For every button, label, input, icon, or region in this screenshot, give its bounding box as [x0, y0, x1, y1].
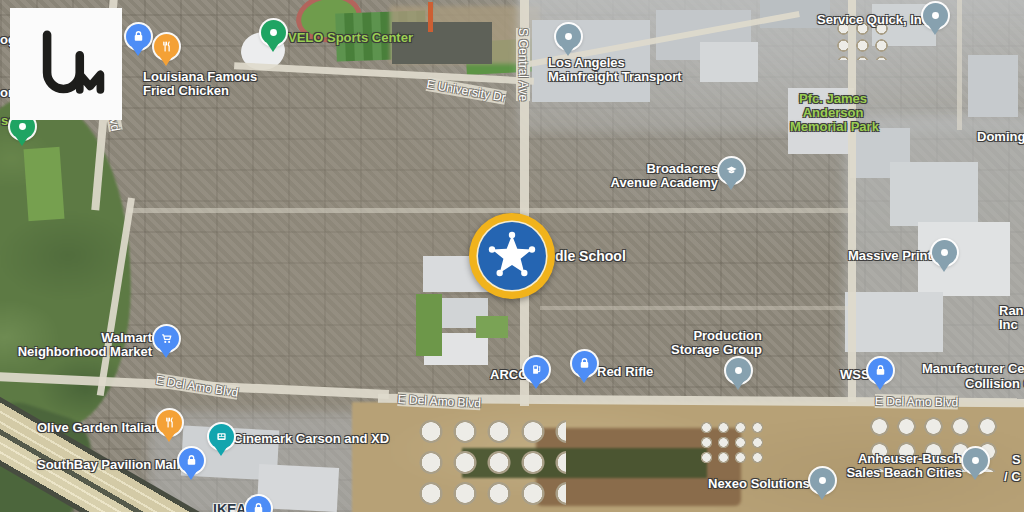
poi-dot-icon: [731, 363, 746, 378]
poi-dot-icon: [561, 29, 576, 44]
broadacres-label: BroadacresAvenue Academy: [610, 162, 718, 190]
olive-garden-label: Olive Garden Italian: [37, 421, 159, 435]
shopping-bag-icon: [131, 29, 146, 44]
massive-print-marker[interactable]: [932, 240, 957, 272]
restaurant-icon: [162, 415, 177, 430]
nexeo-label: Nexeo Solutions: [708, 477, 810, 491]
wss-label: WSS: [840, 368, 870, 382]
road-mid-street: [540, 306, 850, 310]
arco-marker[interactable]: [524, 357, 549, 389]
los-angeles-mainfreight-transport-marker[interactable]: [556, 24, 581, 56]
road-e-university-dr: [234, 62, 534, 85]
louisiana-famous-fried-chicken-marker[interactable]: [154, 34, 179, 66]
broadacres-avenue-academy-marker[interactable]: [719, 158, 744, 190]
walmart-label: WalmartNeighborhood Market: [15, 331, 152, 359]
shopping-bag-icon: [577, 356, 592, 371]
velo-sports-center-marker[interactable]: [261, 20, 286, 52]
graduation-cap-icon: [724, 163, 739, 178]
poi-dot-icon: [937, 245, 952, 260]
louisiana-label: Louisiana FamousFried Chicken: [143, 70, 257, 98]
massive-print-label: Massive Print: [848, 249, 932, 263]
poi-dot-icon: [815, 473, 830, 488]
walmart-neighborhood-market-marker[interactable]: [154, 326, 179, 358]
restaurant-icon: [159, 39, 174, 54]
road-vertical-east: [957, 0, 962, 130]
central-ave-label: S Central Ave: [516, 28, 530, 101]
shopping-bag-icon: [184, 453, 199, 468]
anheuser-label: Anheuser-BuschSales Beach Cities: [845, 452, 962, 480]
school-label: dle School: [555, 249, 626, 263]
anheuser-busch-marker[interactable]: [963, 448, 988, 480]
movie-icon: [214, 429, 229, 444]
service-quick-marker[interactable]: [923, 3, 948, 35]
liveuamap-logo[interactable]: [10, 8, 122, 120]
wss-marker[interactable]: [868, 358, 893, 390]
sheriff-star-icon: [468, 212, 556, 300]
liveuamap-um-icon: [23, 21, 109, 107]
police-event-star-badge[interactable]: [468, 212, 556, 304]
map-canvas[interactable]: Louisiana FamousFried ChickenVELO Sports…: [0, 0, 1024, 512]
service-quick-label: Service Quick, Inc: [817, 13, 929, 27]
road-avalon-blvd: [97, 197, 135, 396]
del-amo-east-label: E Del Amo Blvd: [875, 394, 959, 409]
southbay-label: SouthBay Pavilion Mall: [37, 458, 180, 472]
edge-fragment-c: / C: [1004, 470, 1021, 484]
southbay-pavilion-mall-marker[interactable]: [179, 448, 204, 480]
ikea-marker[interactable]: [246, 496, 271, 512]
nexeo-solutions-marker[interactable]: [810, 468, 835, 500]
ikea-label: IKEA: [213, 502, 246, 512]
road-vertical-east: [848, 0, 856, 402]
manufacturer-label: Manufacturer Ce: [922, 362, 1024, 376]
dominguez-label: Doming: [977, 130, 1024, 144]
red-rifle-label: Red Rifle: [597, 365, 653, 379]
shopping-bag-icon: [251, 501, 266, 512]
poi-dot-icon: [928, 8, 943, 23]
edge-fragment-s: S: [1012, 453, 1021, 467]
gas-station-icon: [529, 362, 544, 377]
store-poi-marker[interactable]: [126, 24, 151, 56]
memorial-park-label: Pfc. JamesAndersonMemorial Park: [790, 92, 876, 134]
production-storage-label: ProductionStorage Group: [645, 329, 762, 357]
poi-dot-icon: [266, 25, 281, 40]
shopping-bag-icon: [873, 363, 888, 378]
velo-label: VELO Sports Center: [288, 31, 413, 45]
red-rifle-marker[interactable]: [572, 351, 597, 383]
poi-dot-icon: [15, 119, 30, 134]
poi-dot-icon: [968, 453, 983, 468]
olive-garden-marker[interactable]: [157, 410, 182, 442]
shopping-cart-icon: [159, 331, 174, 346]
production-storage-group-marker[interactable]: [726, 358, 751, 390]
cinemark-carson-marker[interactable]: [209, 424, 234, 456]
collision-label: Collision C: [965, 377, 1024, 391]
la-mainfreight-label: Los AngelesMainfreight Transport: [548, 56, 682, 84]
cinemark-label: Cinemark Carson and XD: [233, 432, 389, 446]
rancho-label: RanInc: [999, 304, 1024, 332]
